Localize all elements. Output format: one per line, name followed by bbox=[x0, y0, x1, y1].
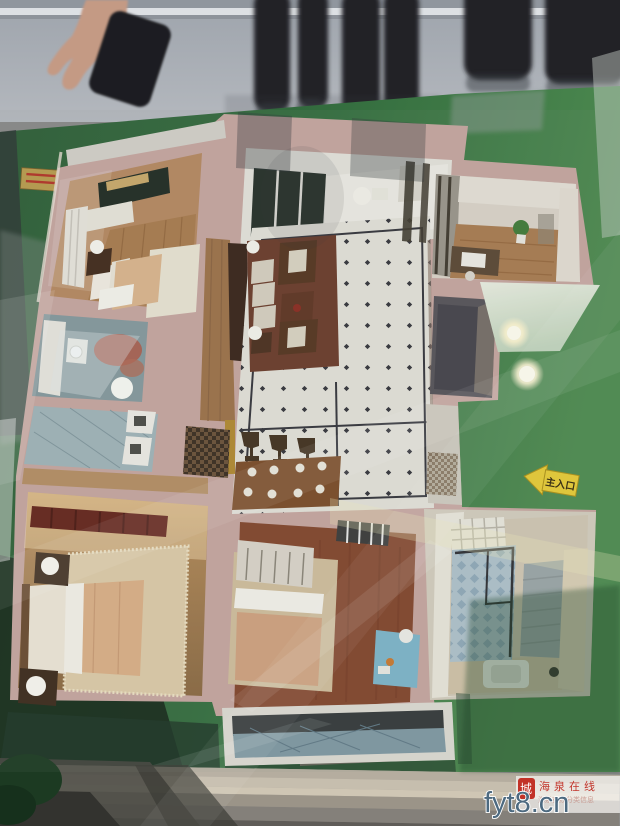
svg-text:fyt8.cn: fyt8.cn bbox=[484, 787, 569, 819]
